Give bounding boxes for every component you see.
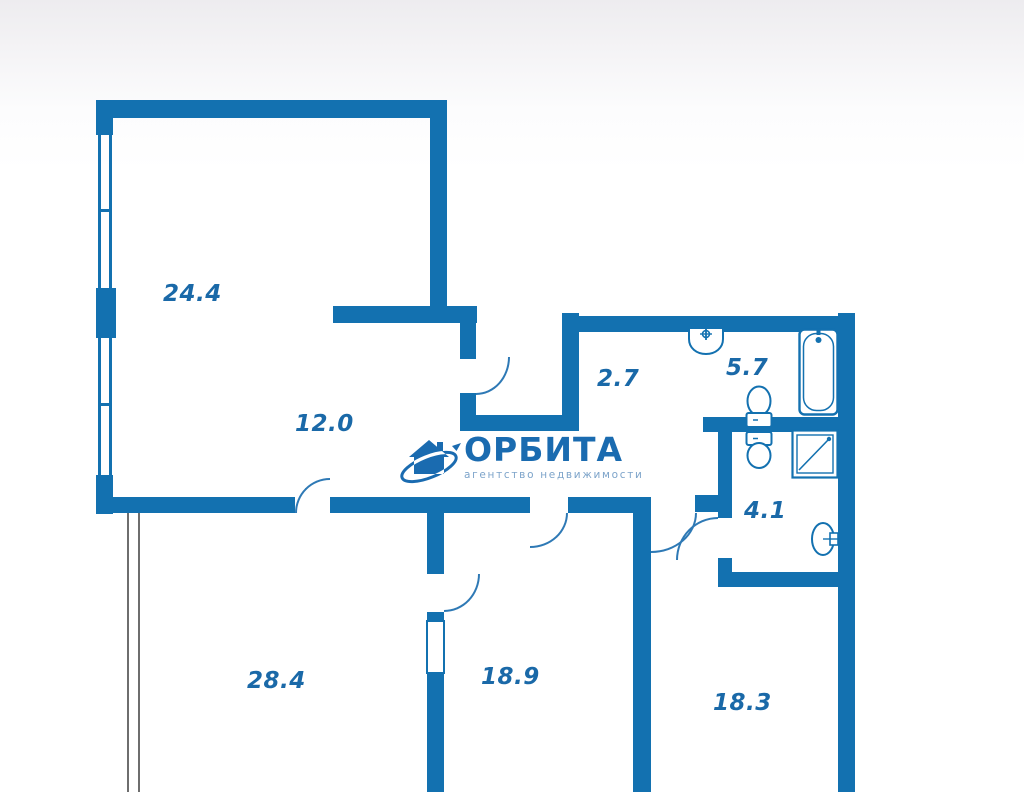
- sink-icon: [810, 520, 840, 558]
- wall-right: [838, 313, 855, 792]
- logo-name: ОРБИТА: [464, 433, 644, 468]
- bathtub-icon: [798, 328, 839, 416]
- room-label-wc: 4.1: [744, 498, 786, 524]
- toilet-icon: [743, 430, 775, 470]
- logo-tagline: агентство недвижимости: [464, 469, 644, 481]
- sink-icon: [686, 326, 726, 356]
- balcony-line-inner: [138, 513, 140, 792]
- wall-hall-bottom-a: [96, 497, 295, 513]
- room-label-bedroom1: 28.4: [247, 668, 306, 694]
- wall-entry-bottom: [460, 415, 578, 431]
- agency-logo: ОРБИТА агентство недвижимости: [397, 433, 644, 491]
- shower-icon: [791, 429, 839, 479]
- floor-plan: 24.4 12.0 2.7 5.7 4.1 28.4 18.9 18.3: [0, 0, 1024, 792]
- wall-living-right: [430, 100, 447, 310]
- house-orbit-icon: [397, 433, 461, 491]
- balcony-line-outer: [127, 513, 129, 792]
- wall-nook-top: [695, 495, 720, 512]
- door-arc-hall-to-bedroom2: [530, 513, 568, 548]
- wall-niche: [426, 620, 445, 674]
- wall-left-upper-pier: [96, 100, 113, 135]
- wall-rooms-divider-left-upper: [427, 511, 444, 574]
- door-arc-bedroom1-to-bedroom2: [444, 574, 480, 612]
- room-label-bedroom2: 18.9: [481, 664, 540, 690]
- room-label-bathroom: 5.7: [726, 355, 768, 381]
- room-label-bedroom3: 18.3: [713, 690, 772, 716]
- wall-rooms-divider-right: [633, 497, 651, 792]
- wall-entry-left-upper: [460, 323, 476, 359]
- wall-wc-left-upper: [718, 432, 732, 518]
- room-label-corridor: 2.7: [597, 366, 639, 392]
- toilet-icon: [743, 385, 775, 430]
- wall-top-living: [96, 100, 447, 118]
- wall-rooms-divider-left-lower: [427, 672, 444, 792]
- wall-wc-bottom: [718, 572, 855, 587]
- door-arc-hall-to-bedroom1: [295, 478, 330, 513]
- wall-left-mid-pier: [96, 288, 116, 338]
- wall-hall-bottom-c: [568, 497, 633, 513]
- door-arc-entrance: [476, 357, 510, 395]
- room-label-living: 24.4: [163, 281, 222, 307]
- wall-living-hall-divider: [333, 306, 477, 323]
- room-label-hall: 12.0: [295, 411, 354, 437]
